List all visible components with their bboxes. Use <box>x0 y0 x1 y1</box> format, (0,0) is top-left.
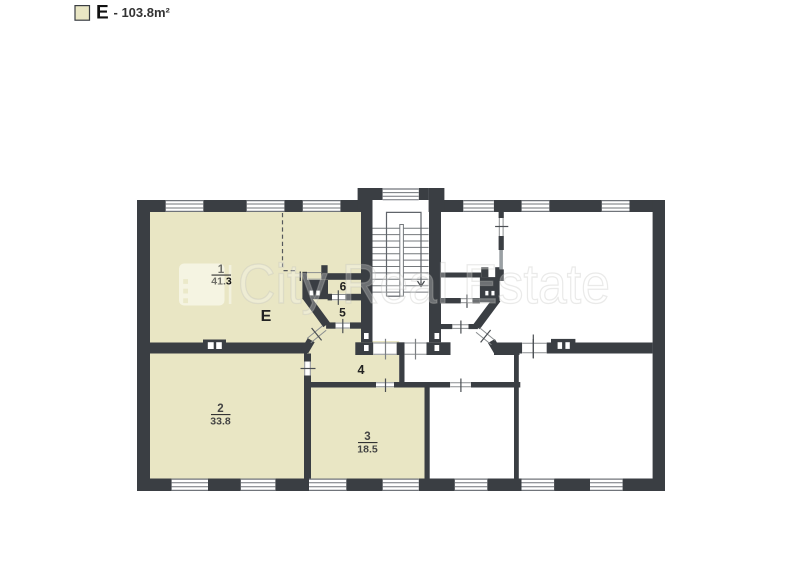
svg-text:City Real Estate: City Real Estate <box>238 252 610 315</box>
svg-text:E: E <box>96 3 109 24</box>
svg-text:1: 1 <box>218 264 225 276</box>
svg-text:2: 2 <box>217 403 223 415</box>
svg-text:- 103.8m²: - 103.8m² <box>114 5 171 20</box>
svg-text:18.5: 18.5 <box>357 444 378 456</box>
svg-text:3: 3 <box>364 431 370 443</box>
svg-text:33.8: 33.8 <box>210 416 231 428</box>
svg-text:4: 4 <box>358 363 365 377</box>
svg-text:41.3: 41.3 <box>211 276 232 288</box>
